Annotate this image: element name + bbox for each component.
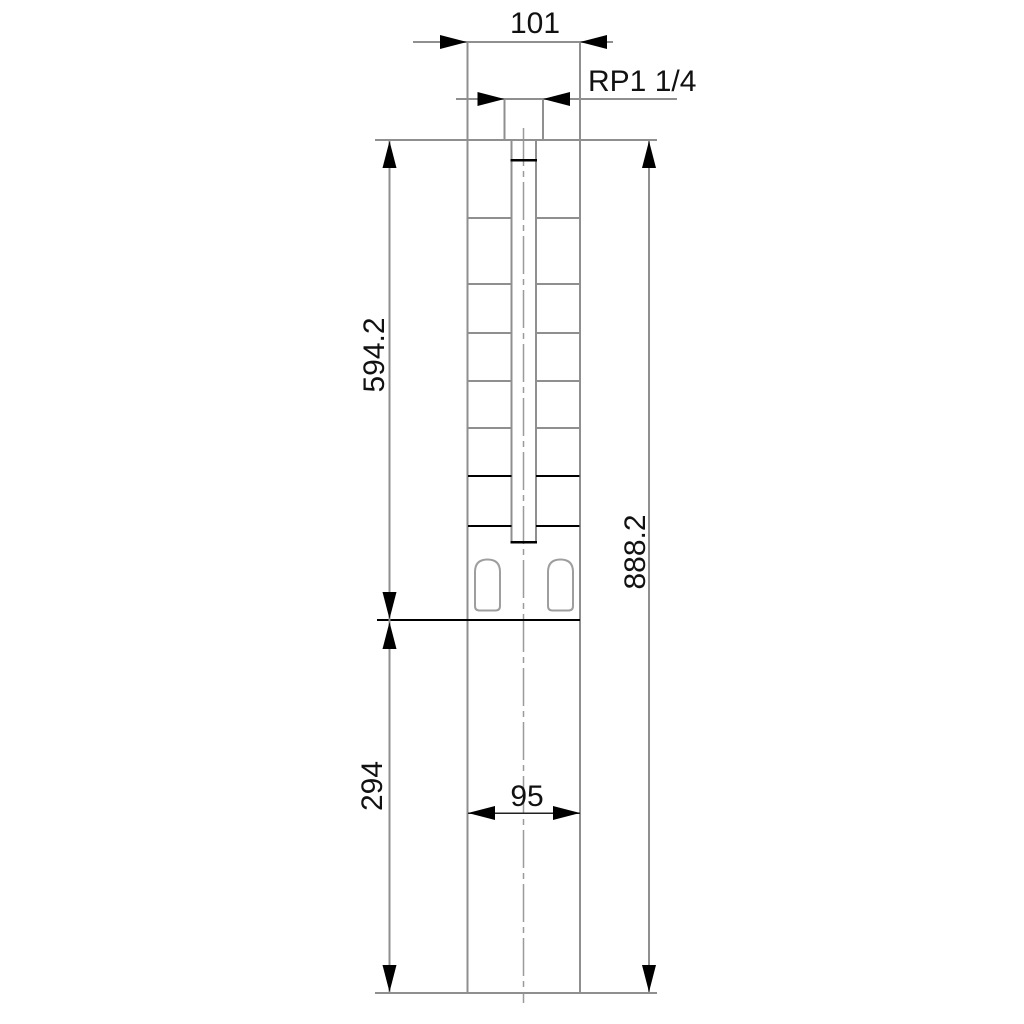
- arrow-down-icon: [642, 965, 656, 992]
- arrow-down-icon: [383, 592, 397, 619]
- pump-body-outline: [375, 42, 657, 993]
- arrow-right-icon: [440, 35, 467, 49]
- arrow-left-icon: [468, 806, 495, 820]
- arrow-right-icon: [478, 92, 505, 106]
- dimension-width-top: 101: [413, 7, 613, 49]
- dim-label-motor-section: 294: [356, 761, 389, 811]
- cable-slot-right: [548, 560, 573, 611]
- dimension-total-length: 888.2: [619, 141, 656, 992]
- dimension-left-column: 594.2 294: [356, 141, 397, 992]
- dim-label-pump-section: 594.2: [358, 317, 391, 392]
- dim-label-width-top: 101: [510, 7, 560, 40]
- arrow-left-icon: [580, 35, 607, 49]
- dim-label-total-length: 888.2: [619, 514, 652, 589]
- pump-dimension-drawing: 101 RP1 1/4 594.2 294 888.2 95: [0, 0, 1024, 1024]
- drawing-canvas: 101 RP1 1/4 594.2 294 888.2 95: [0, 0, 1024, 1024]
- arrow-down-icon: [383, 965, 397, 992]
- arrow-left-icon: [543, 92, 570, 106]
- dim-label-thread: RP1 1/4: [588, 65, 696, 98]
- arrow-up-icon: [383, 141, 397, 168]
- dim-label-width-bottom: 95: [510, 780, 543, 813]
- arrow-up-icon: [383, 622, 397, 649]
- cable-slot-left: [475, 560, 500, 611]
- arrow-right-icon: [553, 806, 580, 820]
- arrow-up-icon: [642, 141, 656, 168]
- dimension-thread: RP1 1/4: [456, 65, 696, 140]
